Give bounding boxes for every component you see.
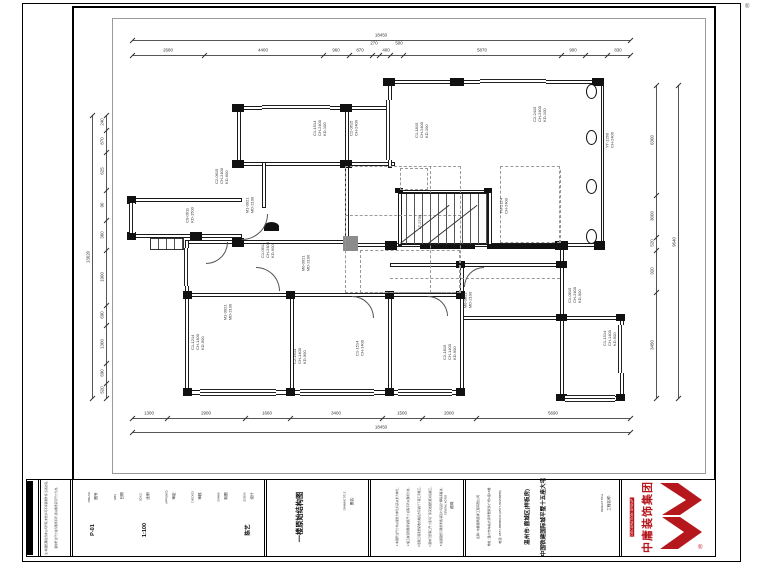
dim-label: 500 [395,41,402,46]
room-code-label: C1-1514 CH-2400 KD-100 [313,120,328,136]
attr-label: 审定 [172,492,177,499]
dim-line [132,40,630,41]
attr-label: 日期 [120,492,125,499]
room-code-label: C0-0611 KD-1500 [185,207,195,223]
attr-label: 审核 [198,492,203,499]
project-title-sublabel: PROJECT TITLE [601,494,604,512]
attr-value: 陈艺 [244,524,252,535]
room-code-label: C2-0615 CH-2400 [349,120,359,136]
dim-overall-label: 18450 [375,33,387,38]
dim-overall-label: 9640 [672,237,677,247]
dim-label: 5690 [548,411,558,416]
dim-label: 1500 [397,411,407,416]
attr-value: 1:100 [141,523,147,537]
company-info-line: 电话: 0577-88880233 (0577-80155888) [498,490,502,543]
attr-sublabel: CHECKED [192,491,195,503]
logo-reg-mark: ® [698,545,702,551]
column-fill [232,104,244,112]
project-title-label: 工程名称: [607,495,612,510]
attr-sublabel: DATE [114,494,117,500]
room-code-label: LT-2730 [418,215,423,229]
wall-segment [601,80,604,247]
window-symbol [184,248,190,286]
room-code-label: C2-1815 CH-1400 KD-900 [443,344,458,360]
project-name-line: 中国铁建国际城平墅十五座大宅 [539,478,547,556]
entry-steps [150,238,184,250]
dim-label: 520 [100,386,105,393]
wall-segment [237,106,241,166]
room-code-label: M1-0921 MD-2100 [223,304,233,320]
dim-label: 690 [100,311,105,318]
column-fill [594,241,605,250]
note-line: 4.图中门窗洞口尺寸须与厂家深化图纸核对后施工。 [428,485,432,547]
company-info-line: 名称: 中庸建筑装饰工程有限公司 [476,495,480,539]
attr-sublabel: DWG.NO. [88,492,91,503]
room-code-label: M0-0821 MD-2100 [463,292,473,308]
wall-segment [185,293,464,297]
attr-sublabel: SCALE [140,493,143,501]
column-fill [385,388,394,396]
room-code-label: C1-1815 CH-2400 KD-100 [415,122,430,138]
dim-label: 3450 [650,340,655,350]
title-block-divider [264,480,267,556]
dim-label: 625 [100,167,105,174]
dim-label: 1900 [100,272,105,282]
window-symbol [200,389,276,396]
dim-label: 1660 [262,411,272,416]
column-fill [487,244,565,249]
column-fill [183,388,192,396]
room-code-label: C1-1514 CH-1400 KD-900 [603,330,618,346]
beam-dashed-box [400,168,428,190]
dim-line [92,115,93,398]
note-line: 3.隐蔽工程须经验收合格后方可进行下道工序施工。 [417,485,421,547]
notes-label: 说明: [450,501,455,509]
wall-segment [460,316,624,320]
dim-label: 520 [650,239,655,246]
beam-dashed-box [500,166,560,243]
dim-label: 870 [100,137,105,144]
window-symbol [480,79,546,85]
room-code-label: C2-0615 CH-2400 KD-600 [215,168,230,184]
room-code-label: M0-0921 MD-2100 [301,255,311,271]
dim-label: 4400 [258,48,268,53]
wall-segment [388,293,392,394]
window-symbol [386,100,392,160]
window-symbol [565,395,615,402]
column-fill [286,388,295,396]
dim-line [132,432,630,433]
column-fill [556,314,567,321]
beam-dashed-box [360,250,460,293]
dim-label: 3000 [650,211,655,221]
dim-line [132,55,630,56]
note-line: 2.施工前须到现场复核尺寸,如有不符以现场为准。 [406,486,410,546]
dim-label: 270 [370,41,377,46]
dim-label: 400 [382,48,389,53]
column-fill [190,232,202,240]
dim-label: 830 [614,48,621,53]
dim-label: 6300 [650,135,655,145]
drawing-title-sublabel: DRAWING TITLE [344,492,347,511]
wall-segment [488,190,492,246]
attr-sublabel: DRAWN [218,493,221,502]
drawing-sheet: ® 一楼原始结构图 图名: DRAWING TITLE 说明: GENERAL … [0,0,760,570]
attr-value: P-01 [89,524,95,536]
logo-name: 中庸装饰集团 [639,481,655,553]
room-code-label: C1-0615 CH-2400 KD-900 [568,287,583,303]
dim-label: 920 [650,267,655,274]
window-symbol [262,105,330,111]
column-oval [586,130,597,145]
window-symbol [398,389,452,396]
staircase [398,193,488,245]
room-code-label: TM-2124 CH-2400 [499,198,509,214]
column-fill [383,78,395,86]
room-code-label: C1-1214 CH-1400 KD-900 [191,334,206,350]
note-line: 5.如遇图纸与现场矛盾,请及时与设计师联系解决。 [439,486,443,546]
dim-label: 5870 [477,48,487,53]
dim-label: 690 [100,369,105,376]
title-block-divider [368,480,371,556]
notes-sublabel: GENERAL NOTES [445,495,448,515]
dim-label: 2000 [444,411,454,416]
title-block-divider [619,480,622,556]
column-fill [556,261,567,268]
dim-label: 960 [332,48,339,53]
attr-sublabel: DESIGN [244,492,247,501]
margin-note: 图中所注尺寸如与现场不符,须以现场实际尺寸为准。 [54,485,58,548]
column-fill [340,104,352,112]
logo-mountain-icon [658,483,704,549]
dim-line [678,85,679,398]
margin-note: 注:本图纸版权归本公司所有,未经许可不得复制外传,违者必究。 [44,479,48,555]
drawing-title-label: 图名: [350,497,355,505]
title-block [26,479,716,557]
drawing-title-value: 一楼原始结构图 [295,492,305,542]
column-fill [232,160,244,168]
note-line: 1.本图所注尺寸均以毫米为单位,标高以米为单位。 [395,486,399,546]
room-code-label: YT-1260 CH-2400 [605,132,615,148]
column-oval [586,179,597,194]
column-fill [450,78,464,86]
dim-label: 240 [100,118,105,125]
column-fill [456,388,465,396]
dim-label: 870 [356,48,363,53]
room-code-label: M1-0921 MD-2100 [245,197,255,213]
attr-label: 设计 [250,492,255,499]
wall-segment [130,198,242,202]
dim-line [106,115,107,398]
title-block-divider [70,480,73,556]
column-oval [586,84,597,99]
wall-segment [262,162,266,208]
dim-label: 900 [569,48,576,53]
window-symbol [129,203,135,233]
dim-overall-label: 18450 [375,425,387,430]
column-fill [616,394,625,401]
dim-label: 3400 [331,411,341,416]
dim-label: 2680 [163,48,173,53]
attr-sublabel: APPROVED [166,490,169,503]
dim-label: 90 [100,203,105,208]
column-fill [616,314,625,321]
room-code-label: C1-1514 CH-1400 [355,340,365,356]
room-code-label: C2-2415 CH-2400 KD-100 [533,106,548,122]
dim-overall-label: 13620 [86,250,91,262]
title-block-black-bar [27,481,33,555]
wall-segment [130,234,242,238]
logo-subtitle-bar: DECORATION GROUP [630,497,634,536]
dim-label: 1300 [144,411,154,416]
dim-label: 360 [100,231,105,238]
title-block-divider [38,480,41,556]
project-name-line: 温州市·鹿城区(样板房) [523,489,531,545]
window-symbol [618,325,624,373]
attr-label: 图号 [94,492,99,499]
room-code-label: C2-1514 CH-1400 KD-900 [293,348,308,364]
title-block-divider [463,480,466,556]
column-oval [586,229,597,244]
room-code-label: C1-0612 CH-2400 KD-900 [261,242,276,258]
column-fill [183,291,192,299]
company-info-line: 地址: 温州市车站大道华盟商务广场A座16楼 [487,488,491,547]
column-fill [286,291,295,299]
dim-label: 2900 [201,411,211,416]
column-fill [127,232,136,240]
attr-label: 比例 [146,492,151,499]
dim-label: 1300 [100,339,105,349]
wall-segment [290,293,294,394]
sheet-reg-mark: ® [745,4,749,10]
attr-label: 制图 [224,492,229,499]
beam-dashed-line [560,170,561,243]
dim-line [656,85,657,398]
window-symbol [300,389,374,396]
